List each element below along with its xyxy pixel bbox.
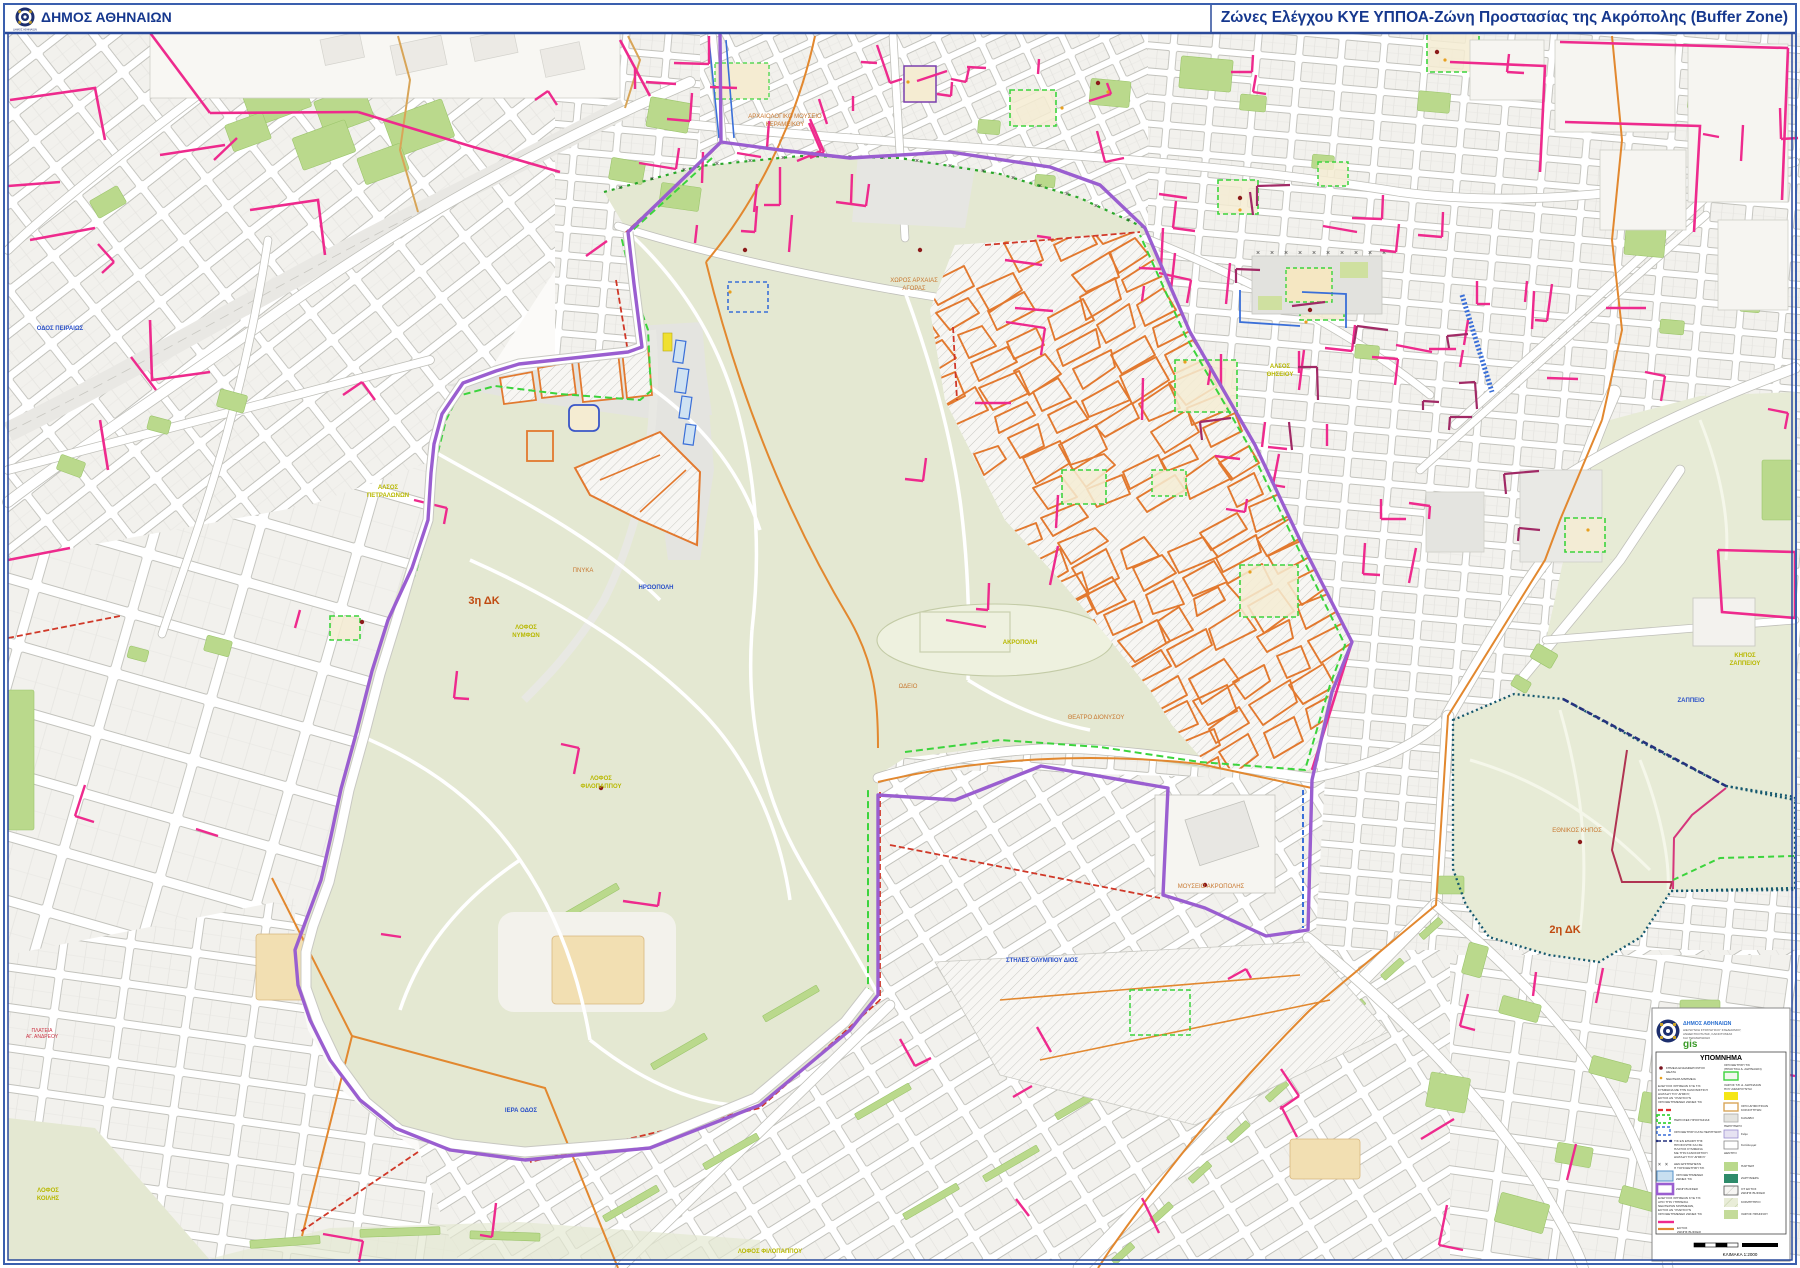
svg-text:ΚΛΙΜΑΚΑ 1:2000: ΚΛΙΜΑΚΑ 1:2000 [1723,1252,1758,1257]
svg-text:×: × [1340,250,1344,257]
svg-text:ΚΕΡΑΜΕΙΚΟΥ: ΚΕΡΑΜΕΙΚΟΥ [766,122,805,128]
svg-text:×: × [682,167,686,174]
svg-text:ΔΗΜΟΣ ΑΘΗΝΑΙΩΝ: ΔΗΜΟΣ ΑΘΗΝΑΙΩΝ [41,9,172,25]
svg-text:×: × [1256,250,1260,257]
svg-text:×: × [1665,1162,1668,1168]
svg-text:ΠΑΡΤΕΡΙ: ΠΑΡΤΕΡΙ [1741,1164,1754,1168]
svg-text:ΟΔΟΣ ΠΕΙΡΑΙΩΣ: ΟΔΟΣ ΠΕΙΡΑΙΩΣ [37,326,84,332]
svg-text:×: × [948,163,952,170]
svg-text:×: × [781,155,785,162]
svg-text:ΑΛΣΟΣ: ΑΛΣΟΣ [378,485,399,491]
svg-text:ΔΗΜΟΣ ΑΘΗΝΑΙΩΝ: ΔΗΜΟΣ ΑΘΗΝΑΙΩΝ [13,28,37,32]
svg-text:×: × [1127,217,1131,224]
svg-text:×: × [1658,1162,1661,1168]
svg-text:ΚΗΠΟΣ: ΚΗΠΟΣ [1734,653,1756,659]
svg-text:×: × [1094,203,1098,210]
svg-text:×: × [1038,183,1042,190]
svg-text:ΔΕΝΤΡΟ: ΔΕΝΤΡΟ [1724,1151,1737,1155]
svg-text:ΠΕΡΙΟΧΕΣ ΠΡΟΣΤΑΣΙΑΣ: ΠΕΡΙΟΧΕΣ ΠΡΟΣΤΑΣΙΑΣ [1674,1118,1710,1122]
svg-text:ΩΔΕΙΟ: ΩΔΕΙΟ [899,684,918,690]
svg-text:Η ΤΟΠΟΘΕΤΗΣΗ Τ/Κ: Η ΤΟΠΟΘΕΤΗΣΗ Τ/Κ [1674,1166,1705,1170]
svg-text:(ΠΡΑΚΤΙΚΑ Δ. ΑΘΗΝΑΙΩΝ): (ΠΡΑΚΤΙΚΑ Δ. ΑΘΗΝΑΙΩΝ) [1724,1067,1762,1071]
svg-text:2η ΔΚ: 2η ΔΚ [1549,924,1580,936]
svg-text:×: × [981,168,985,175]
svg-text:ΧΩΡΟΣ ΠΡΑΣΙΝΟΥ: ΧΩΡΟΣ ΠΡΑΣΙΝΟΥ [1741,1212,1768,1216]
svg-text:ΝΕΩΤΕΡΑ ΜΝΗΜΕΙΑ: ΝΕΩΤΕΡΑ ΜΝΗΜΕΙΑ [1666,1077,1697,1081]
svg-text:ΔΙΑΤΑΞΗ ΤΟΥ ΔΗΜΟΥ: ΔΙΑΤΑΞΗ ΤΟΥ ΔΗΜΟΥ [1674,1155,1706,1159]
svg-text:ΚΟΙΝΟΤΗΤΩΝ: ΚΟΙΝΟΤΗΤΩΝ [1741,1108,1761,1112]
svg-text:ΛΟΦΟΣ: ΛΟΦΟΣ [515,625,537,631]
svg-text:×: × [1312,250,1316,257]
svg-text:ΖΑΠΠΕΙΟ: ΖΑΠΠΕΙΟ [1678,698,1705,704]
svg-text:ΑΓΟΡΑΣ: ΑΓΟΡΑΣ [902,286,926,292]
svg-text:ΖΩΝΗΣ BUFFER: ΖΩΝΗΣ BUFFER [1677,1230,1702,1234]
svg-text:ΖΩΝΗ BUFFER: ΖΩΝΗ BUFFER [1676,1187,1699,1191]
svg-text:ΠΕΤΡΑΛΩΝΩΝ: ΠΕΤΡΑΛΩΝΩΝ [367,493,409,499]
svg-text:ΜΟΥΣΕΙΟ ΑΚΡΟΠΟΛΗΣ: ΜΟΥΣΕΙΟ ΑΚΡΟΠΟΛΗΣ [1178,884,1245,890]
svg-text:ΥΠΟΜΝΗΜΑ: ΥΠΟΜΝΗΜΑ [1700,1055,1742,1062]
svg-text:ΑΡΧΑΙΟΛΟΓΙΚΟ ΜΟΥΣΕΙΟ: ΑΡΧΑΙΟΛΟΓΙΚΟ ΜΟΥΣΕΙΟ [748,114,822,120]
svg-text:ΟΡΙΟΘΕΤΗΜΕΝΕΣ ΖΩΝΕΣ Τ/Κ: ΟΡΙΟΘΕΤΗΜΕΝΕΣ ΖΩΝΕΣ Τ/Κ [1658,1212,1703,1216]
svg-text:ΖΩΝΕΣ Τ/Κ: ΖΩΝΕΣ Τ/Κ [1676,1177,1693,1181]
svg-text:ΖΩΝΗΣ BUFFER: ΖΩΝΗΣ BUFFER [1741,1191,1766,1195]
svg-text:ΑΚΡΟΠΟΛΗ: ΑΚΡΟΠΟΛΗ [1003,640,1038,646]
svg-text:Σιάμι: Σιάμι [1741,1132,1748,1136]
svg-text:ΝΥΜΦΩΝ: ΝΥΜΦΩΝ [512,633,539,639]
svg-text:ΕΘΝΙΚΟΣ ΚΗΠΟΣ: ΕΘΝΙΚΟΣ ΚΗΠΟΣ [1552,828,1602,834]
svg-text:ΘΕΑΤΑ: ΘΕΑΤΑ [1666,1070,1677,1074]
svg-text:×: × [650,176,654,183]
svg-text:ΚΑΝΑΒΟ: ΚΑΝΑΒΟ [1741,1116,1754,1120]
svg-text:ΘΕΑΤΡΟ ΔΙΟΝΥΣΟΥ: ΘΕΑΤΡΟ ΔΙΟΝΥΣΟΥ [1068,715,1125,721]
svg-text:ΔΗΜΟΣ ΑΘΗΝΑΙΩΝ: ΔΗΜΟΣ ΑΘΗΝΑΙΩΝ [1683,1021,1732,1027]
svg-text:×: × [1270,250,1274,257]
svg-text:ΑΛΣΟΣ: ΑΛΣΟΣ [1270,364,1291,370]
svg-text:×: × [748,158,752,165]
svg-text:×: × [618,185,622,192]
svg-text:ΙΕΡΑ ΟΔΟΣ: ΙΕΡΑ ΟΔΟΣ [505,1108,538,1114]
svg-text:ΠΟΥ ΑΦΑΙΡΟΥΝΤΑΙ: ΠΟΥ ΑΦΑΙΡΟΥΝΤΑΙ [1724,1087,1752,1091]
svg-text:ΠΝΥΚΑ: ΠΝΥΚΑ [573,568,594,574]
svg-text:×: × [1065,191,1069,198]
svg-text:ΖΑΠΠΕΙΟΥ: ΖΑΠΠΕΙΟΥ [1730,661,1761,667]
svg-text:ΦΙΛΟΠΑΠΠΟΥ: ΦΙΛΟΠΑΠΠΟΥ [581,784,622,790]
svg-text:×: × [1284,250,1288,257]
svg-text:ΟΡΙΟΘΕΤΗΜΕΝΕΣ ΖΩΝΕΣ Τ/Κ: ΟΡΙΟΘΕΤΗΜΕΝΕΣ ΖΩΝΕΣ Τ/Κ [1658,1100,1703,1104]
svg-text:ΚΟΙΜΗΤΗΡΙΟ: ΚΟΙΜΗΤΗΡΙΟ [1741,1200,1761,1204]
svg-text:ΠΕΡΙΠΤΕΡΟ: ΠΕΡΙΠΤΕΡΟ [1724,1124,1742,1128]
svg-text:ΛΟΦΟΣ: ΛΟΦΟΣ [37,1188,59,1194]
svg-text:ΣΤΗΛΕΣ ΟΛΥΜΠΙΟΥ ΔΙΟΣ: ΣΤΗΛΕΣ ΟΛΥΜΠΙΟΥ ΔΙΟΣ [1006,958,1078,964]
svg-text:ΖΑΡΤΙΝΙΕΡΑ: ΖΑΡΤΙΝΙΕΡΑ [1741,1176,1760,1180]
svg-text:×: × [915,158,919,165]
svg-text:ΛΟΦΟΣ: ΛΟΦΟΣ [590,776,612,782]
svg-text:Κατάλυμμα: Κατάλυμμα [1741,1143,1757,1147]
svg-text:×: × [1011,175,1015,182]
svg-text:ΑΓ. ΑΝΔΡΕΟΥ: ΑΓ. ΑΝΔΡΕΟΥ [26,1034,59,1040]
svg-text:ΟΡΙΟΘΕΤΗΣΗ ΚΑΤΑ ΠΕΡΙΠΤΩΣΗ: ΟΡΙΟΘΕΤΗΣΗ ΚΑΤΑ ΠΕΡΙΠΤΩΣΗ [1674,1130,1721,1134]
svg-text:×: × [1368,250,1372,257]
svg-text:ΗΡΩΟΠΟΛΗ: ΗΡΩΟΠΟΛΗ [639,585,674,591]
svg-text:×: × [1354,250,1358,257]
svg-text:×: × [1298,250,1302,257]
svg-text:gis: gis [1683,1039,1698,1050]
svg-text:×: × [1326,250,1330,257]
svg-text:ΛΟΦΟΣ ΦΙΛΟΠΑΠΠΟΥ: ΛΟΦΟΣ ΦΙΛΟΠΑΠΠΟΥ [738,1249,802,1255]
svg-text:3η ΔΚ: 3η ΔΚ [468,595,499,607]
svg-text:Ζώνες Ελέγχου ΚΥΕ ΥΠΠΟΑ-Ζώνη Π: Ζώνες Ελέγχου ΚΥΕ ΥΠΠΟΑ-Ζώνη Προστασίας … [1221,9,1788,26]
svg-text:ΘΗΣΕΙΟΥ: ΘΗΣΕΙΟΥ [1267,372,1294,378]
svg-text:ΧΩΡΟΣ ΑΡΧΑΙΑΣ: ΧΩΡΟΣ ΑΡΧΑΙΑΣ [890,278,938,284]
svg-text:ΚΟΙΛΗΣ: ΚΟΙΛΗΣ [37,1196,60,1202]
svg-text:×: × [715,161,719,168]
